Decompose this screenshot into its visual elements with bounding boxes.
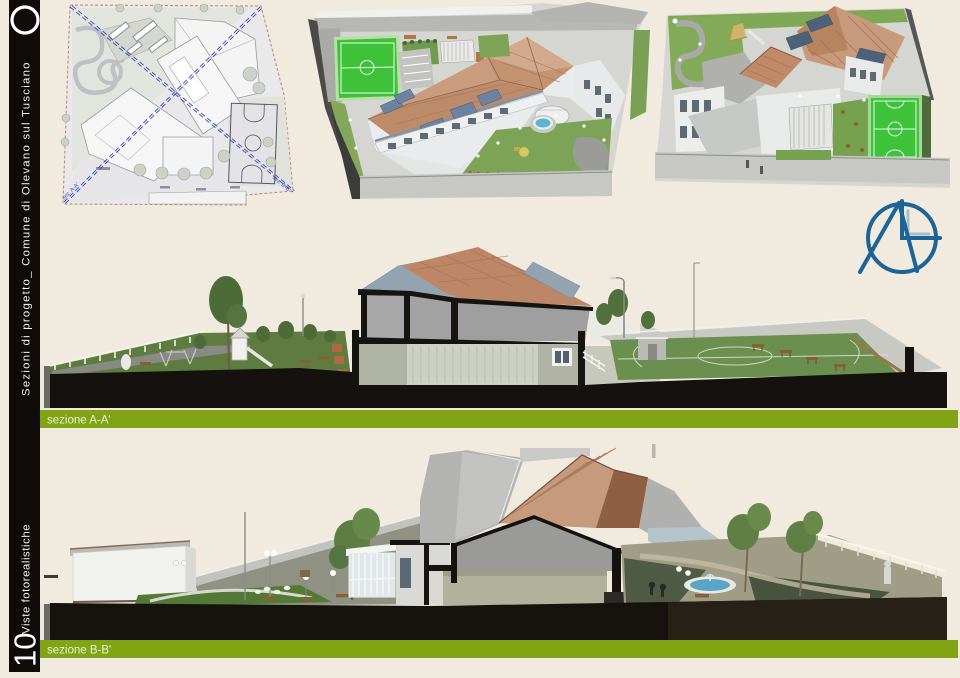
svg-text:sezione B-B': sezione B-B': [47, 645, 111, 657]
svg-text:Viste fotorealistiche: Viste fotorealistiche: [21, 524, 33, 634]
svg-text:sezione A-A': sezione A-A': [47, 415, 111, 427]
svg-text:10: 10: [8, 633, 43, 667]
svg-text:Sezioni di progetto_ Comune di: Sezioni di progetto_ Comune di Olevano s…: [21, 61, 33, 396]
